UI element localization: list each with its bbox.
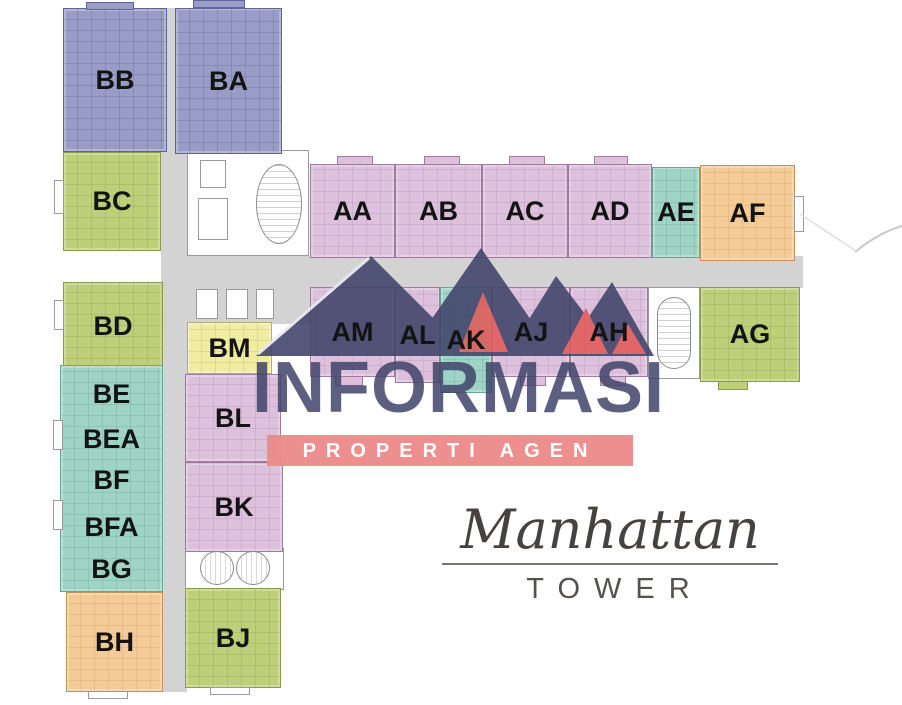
balcony-ab — [424, 156, 460, 165]
balcony-ba — [193, 0, 245, 8]
unit-bf-label: BF — [61, 465, 162, 496]
balcony-ad — [594, 156, 628, 165]
unit-group-be-bg: BE BEA BF BFA BG — [60, 365, 163, 592]
balcony-ac — [509, 156, 545, 165]
unit-bd: BD — [63, 282, 163, 370]
floor-plan-page: BB BA BC AA AB AC AD AE AF AM AL — [0, 0, 902, 705]
unit-ac-label: AC — [506, 196, 545, 227]
unit-ae: AE — [652, 167, 700, 258]
unit-ak-label: AK — [447, 325, 486, 356]
balcony-west-1 — [54, 180, 64, 214]
central-stair-oval — [256, 164, 302, 244]
unit-bb: BB — [63, 8, 167, 152]
unit-bh-label: BH — [95, 627, 134, 658]
unit-be-label: BE — [61, 379, 162, 410]
unit-ag: AG — [700, 287, 800, 382]
unit-bfa-label: BFA — [61, 512, 162, 543]
unit-af-label: AF — [730, 198, 766, 229]
unit-ab-label: AB — [419, 196, 458, 227]
balcony-aa — [337, 156, 373, 165]
unit-ba: BA — [175, 8, 282, 154]
unit-bd-label: BD — [94, 311, 133, 342]
unit-bc-label: BC — [93, 186, 132, 217]
unit-bk: BK — [185, 462, 283, 552]
unit-ad: AD — [568, 164, 652, 258]
unit-aa-label: AA — [333, 196, 372, 227]
corridor-shaft-2 — [226, 289, 248, 319]
tower-sign: Manhattan TOWER — [440, 500, 780, 606]
central-core-room — [198, 198, 228, 240]
tower-name: Manhattan — [440, 500, 780, 559]
unit-ac: AC — [482, 164, 568, 258]
balcony-west-2 — [54, 300, 64, 330]
unit-ah-label: AH — [590, 317, 629, 348]
tower-sign-rule — [442, 563, 778, 565]
balcony-bj-south — [210, 687, 250, 695]
stair-drum-2 — [236, 551, 270, 585]
unit-af: AF — [700, 165, 795, 261]
unit-ae-label: AE — [657, 197, 695, 228]
watermark-brand-text: INFORMASI — [252, 352, 652, 424]
central-core-room2 — [200, 160, 226, 188]
unit-ba-label: BA — [209, 66, 248, 97]
unit-bk-label: BK — [215, 492, 254, 523]
unit-al-label: AL — [400, 320, 436, 351]
balcony-af-east — [794, 196, 804, 232]
unit-bh: BH — [66, 592, 163, 692]
unit-bea-label: BEA — [61, 424, 162, 455]
balcony-bb — [86, 2, 134, 10]
balcony-ag-south — [718, 381, 748, 390]
unit-bg-label: BG — [61, 554, 162, 585]
unit-bj-label: BJ — [216, 623, 251, 654]
unit-bm-label: BM — [209, 333, 251, 364]
unit-bl-label: BL — [215, 403, 251, 434]
unit-ag-label: AG — [730, 319, 771, 350]
unit-aj-label: AJ — [514, 317, 549, 348]
unit-am-label: AM — [332, 317, 374, 348]
unit-ad-label: AD — [591, 196, 630, 227]
unit-bj: BJ — [185, 588, 281, 688]
unit-aa: AA — [310, 164, 395, 258]
watermark-banner: PROPERTI AGEN — [267, 435, 633, 466]
unit-bc: BC — [63, 152, 161, 251]
unit-ab: AB — [395, 164, 482, 258]
tower-subtitle: TOWER — [440, 573, 780, 606]
corridor-shaft-1 — [196, 289, 218, 319]
balcony-bh-south — [88, 691, 128, 699]
stair-drum-1 — [200, 551, 234, 585]
unit-bb-label: BB — [96, 65, 135, 96]
